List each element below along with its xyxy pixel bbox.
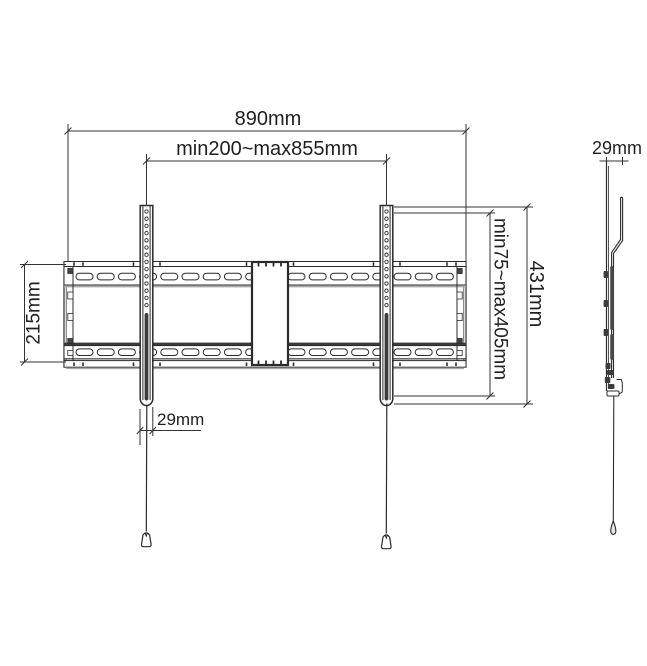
front-view bbox=[20, 124, 533, 549]
vesa-hole bbox=[385, 267, 388, 270]
vesa-hole bbox=[145, 231, 148, 234]
rail-slot bbox=[415, 349, 432, 356]
vesa-hole bbox=[385, 253, 388, 256]
vesa-hole bbox=[385, 210, 388, 213]
side-pull-cord bbox=[611, 396, 616, 534]
vesa-hole bbox=[385, 231, 388, 234]
rail-slot bbox=[436, 349, 453, 356]
vesa-height-dimension-label: min75~max405mm bbox=[491, 218, 510, 380]
rail-slot bbox=[415, 273, 432, 280]
rail-slot bbox=[436, 273, 453, 280]
rail-slot bbox=[352, 349, 369, 356]
vesa-hole bbox=[385, 239, 388, 242]
end-cap-clip bbox=[68, 314, 73, 321]
end-cap-clip bbox=[68, 339, 73, 344]
rail-slot bbox=[161, 273, 178, 280]
dim-vesa-width-lines bbox=[143, 154, 390, 206]
vesa-hole bbox=[385, 275, 388, 278]
vesa-hole bbox=[145, 210, 148, 213]
vesa-hole bbox=[145, 303, 148, 306]
rail-slot bbox=[352, 273, 369, 280]
left-cord-pull-handle bbox=[141, 533, 151, 547]
vesa-hole bbox=[145, 267, 148, 270]
vesa-hole bbox=[385, 260, 388, 263]
rail-slot bbox=[118, 349, 135, 356]
rail-slot bbox=[97, 349, 114, 356]
vesa-hole bbox=[145, 289, 148, 292]
side-view bbox=[600, 157, 629, 534]
vesa-hole bbox=[385, 296, 388, 299]
rail-slot bbox=[203, 273, 220, 280]
rail-slot bbox=[309, 349, 326, 356]
vesa-hole bbox=[145, 217, 148, 220]
vesa-hole bbox=[385, 246, 388, 249]
rail-slot bbox=[203, 349, 220, 356]
technical-drawing bbox=[0, 0, 647, 666]
left-pull-cord bbox=[141, 406, 151, 547]
vesa-hole bbox=[145, 224, 148, 227]
vesa-hole bbox=[145, 282, 148, 285]
rail-slot bbox=[309, 273, 326, 280]
rail-slot bbox=[330, 273, 347, 280]
plate-height-dimension-label: 215mm bbox=[25, 281, 44, 344]
rail-slot bbox=[224, 349, 241, 356]
vesa-hole bbox=[385, 289, 388, 292]
side-cord-pull-handle bbox=[611, 521, 616, 534]
right-cord-pull-handle bbox=[381, 535, 391, 549]
rail-slot bbox=[224, 273, 241, 280]
rail-slot bbox=[394, 349, 411, 356]
end-cap-clip bbox=[457, 292, 462, 299]
bracket-width-dimension-label: 29mm bbox=[157, 411, 204, 428]
side-depth-dimension-label: 29mm bbox=[592, 139, 642, 157]
dim-depth-lines bbox=[600, 157, 629, 165]
rail-slot bbox=[161, 349, 178, 356]
vesa-hole bbox=[145, 260, 148, 263]
end-cap-clip bbox=[68, 269, 73, 274]
vesa-hole bbox=[145, 275, 148, 278]
rail-slot bbox=[330, 349, 347, 356]
end-cap-clip bbox=[457, 314, 462, 321]
rail-slot bbox=[182, 273, 199, 280]
right-pull-cord bbox=[381, 404, 391, 549]
vesa-hole bbox=[385, 217, 388, 220]
rail-slot bbox=[76, 349, 93, 356]
vesa-hole bbox=[385, 224, 388, 227]
end-cap-clip bbox=[457, 339, 462, 344]
dim-vesa-height-lines bbox=[394, 210, 495, 400]
rail-slot bbox=[288, 349, 305, 356]
vesa-hole bbox=[145, 296, 148, 299]
bracket-height-dimension-label: 431mm bbox=[526, 261, 546, 328]
vesa-hole bbox=[145, 246, 148, 249]
rail-slot bbox=[118, 273, 135, 280]
rail-slot bbox=[76, 273, 93, 280]
rail-slot bbox=[97, 273, 114, 280]
center-plate bbox=[252, 261, 288, 366]
right-vesa-bracket bbox=[380, 206, 393, 406]
end-cap-clip bbox=[457, 351, 462, 356]
vesa-width-dimension-label: min200~max855mm bbox=[176, 139, 358, 159]
vesa-hole bbox=[385, 303, 388, 306]
end-cap-clip bbox=[457, 269, 462, 274]
overall-width-dimension-label: 890mm bbox=[235, 109, 302, 129]
left-vesa-bracket bbox=[140, 206, 153, 406]
rail-slot bbox=[182, 349, 199, 356]
drawing-canvas: 890mm min200~max855mm 215mm min75~max405… bbox=[0, 0, 647, 666]
vesa-hole bbox=[385, 282, 388, 285]
vesa-hole bbox=[145, 253, 148, 256]
rail-slot bbox=[394, 273, 411, 280]
rail-slot bbox=[288, 273, 305, 280]
end-cap-clip bbox=[68, 351, 73, 356]
vesa-hole bbox=[145, 239, 148, 242]
end-cap-clip bbox=[68, 292, 73, 299]
